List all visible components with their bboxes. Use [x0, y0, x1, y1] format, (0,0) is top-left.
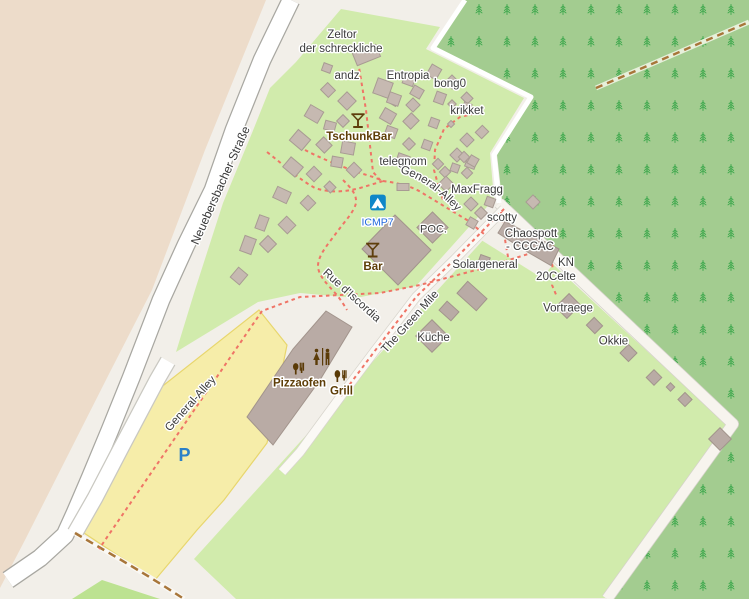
svg-text:Entropia: Entropia — [387, 70, 430, 82]
svg-text:Grill: Grill — [330, 386, 353, 398]
svg-text:- CCCAC: - CCCAC — [506, 241, 554, 253]
svg-text:Solargeneral: Solargeneral — [452, 259, 517, 271]
svg-text:Vortraege: Vortraege — [543, 303, 593, 315]
svg-text:scotty: scotty — [487, 212, 517, 224]
svg-text:Pizzaofen: Pizzaofen — [273, 378, 326, 390]
svg-text:KN: KN — [558, 257, 574, 269]
svg-text:P: P — [178, 445, 190, 465]
svg-text:POC.: POC. — [420, 224, 447, 236]
svg-text:krikket: krikket — [450, 105, 484, 117]
svg-text:Zeltor: Zeltor — [327, 29, 357, 41]
svg-text:Bar: Bar — [363, 261, 383, 273]
svg-text:andz: andz — [335, 70, 360, 82]
svg-text:Okkie: Okkie — [599, 336, 628, 348]
svg-text:MaxFragg: MaxFragg — [451, 184, 503, 196]
svg-text:ICMP7: ICMP7 — [361, 217, 393, 229]
svg-text:der schreckliche: der schreckliche — [299, 43, 382, 55]
svg-text:Küche: Küche — [417, 332, 450, 344]
svg-text:20Celte: 20Celte — [536, 271, 576, 283]
svg-text:TschunkBar: TschunkBar — [326, 131, 392, 143]
svg-text:bong0: bong0 — [434, 78, 466, 90]
svg-text:Chaospott: Chaospott — [505, 228, 558, 240]
